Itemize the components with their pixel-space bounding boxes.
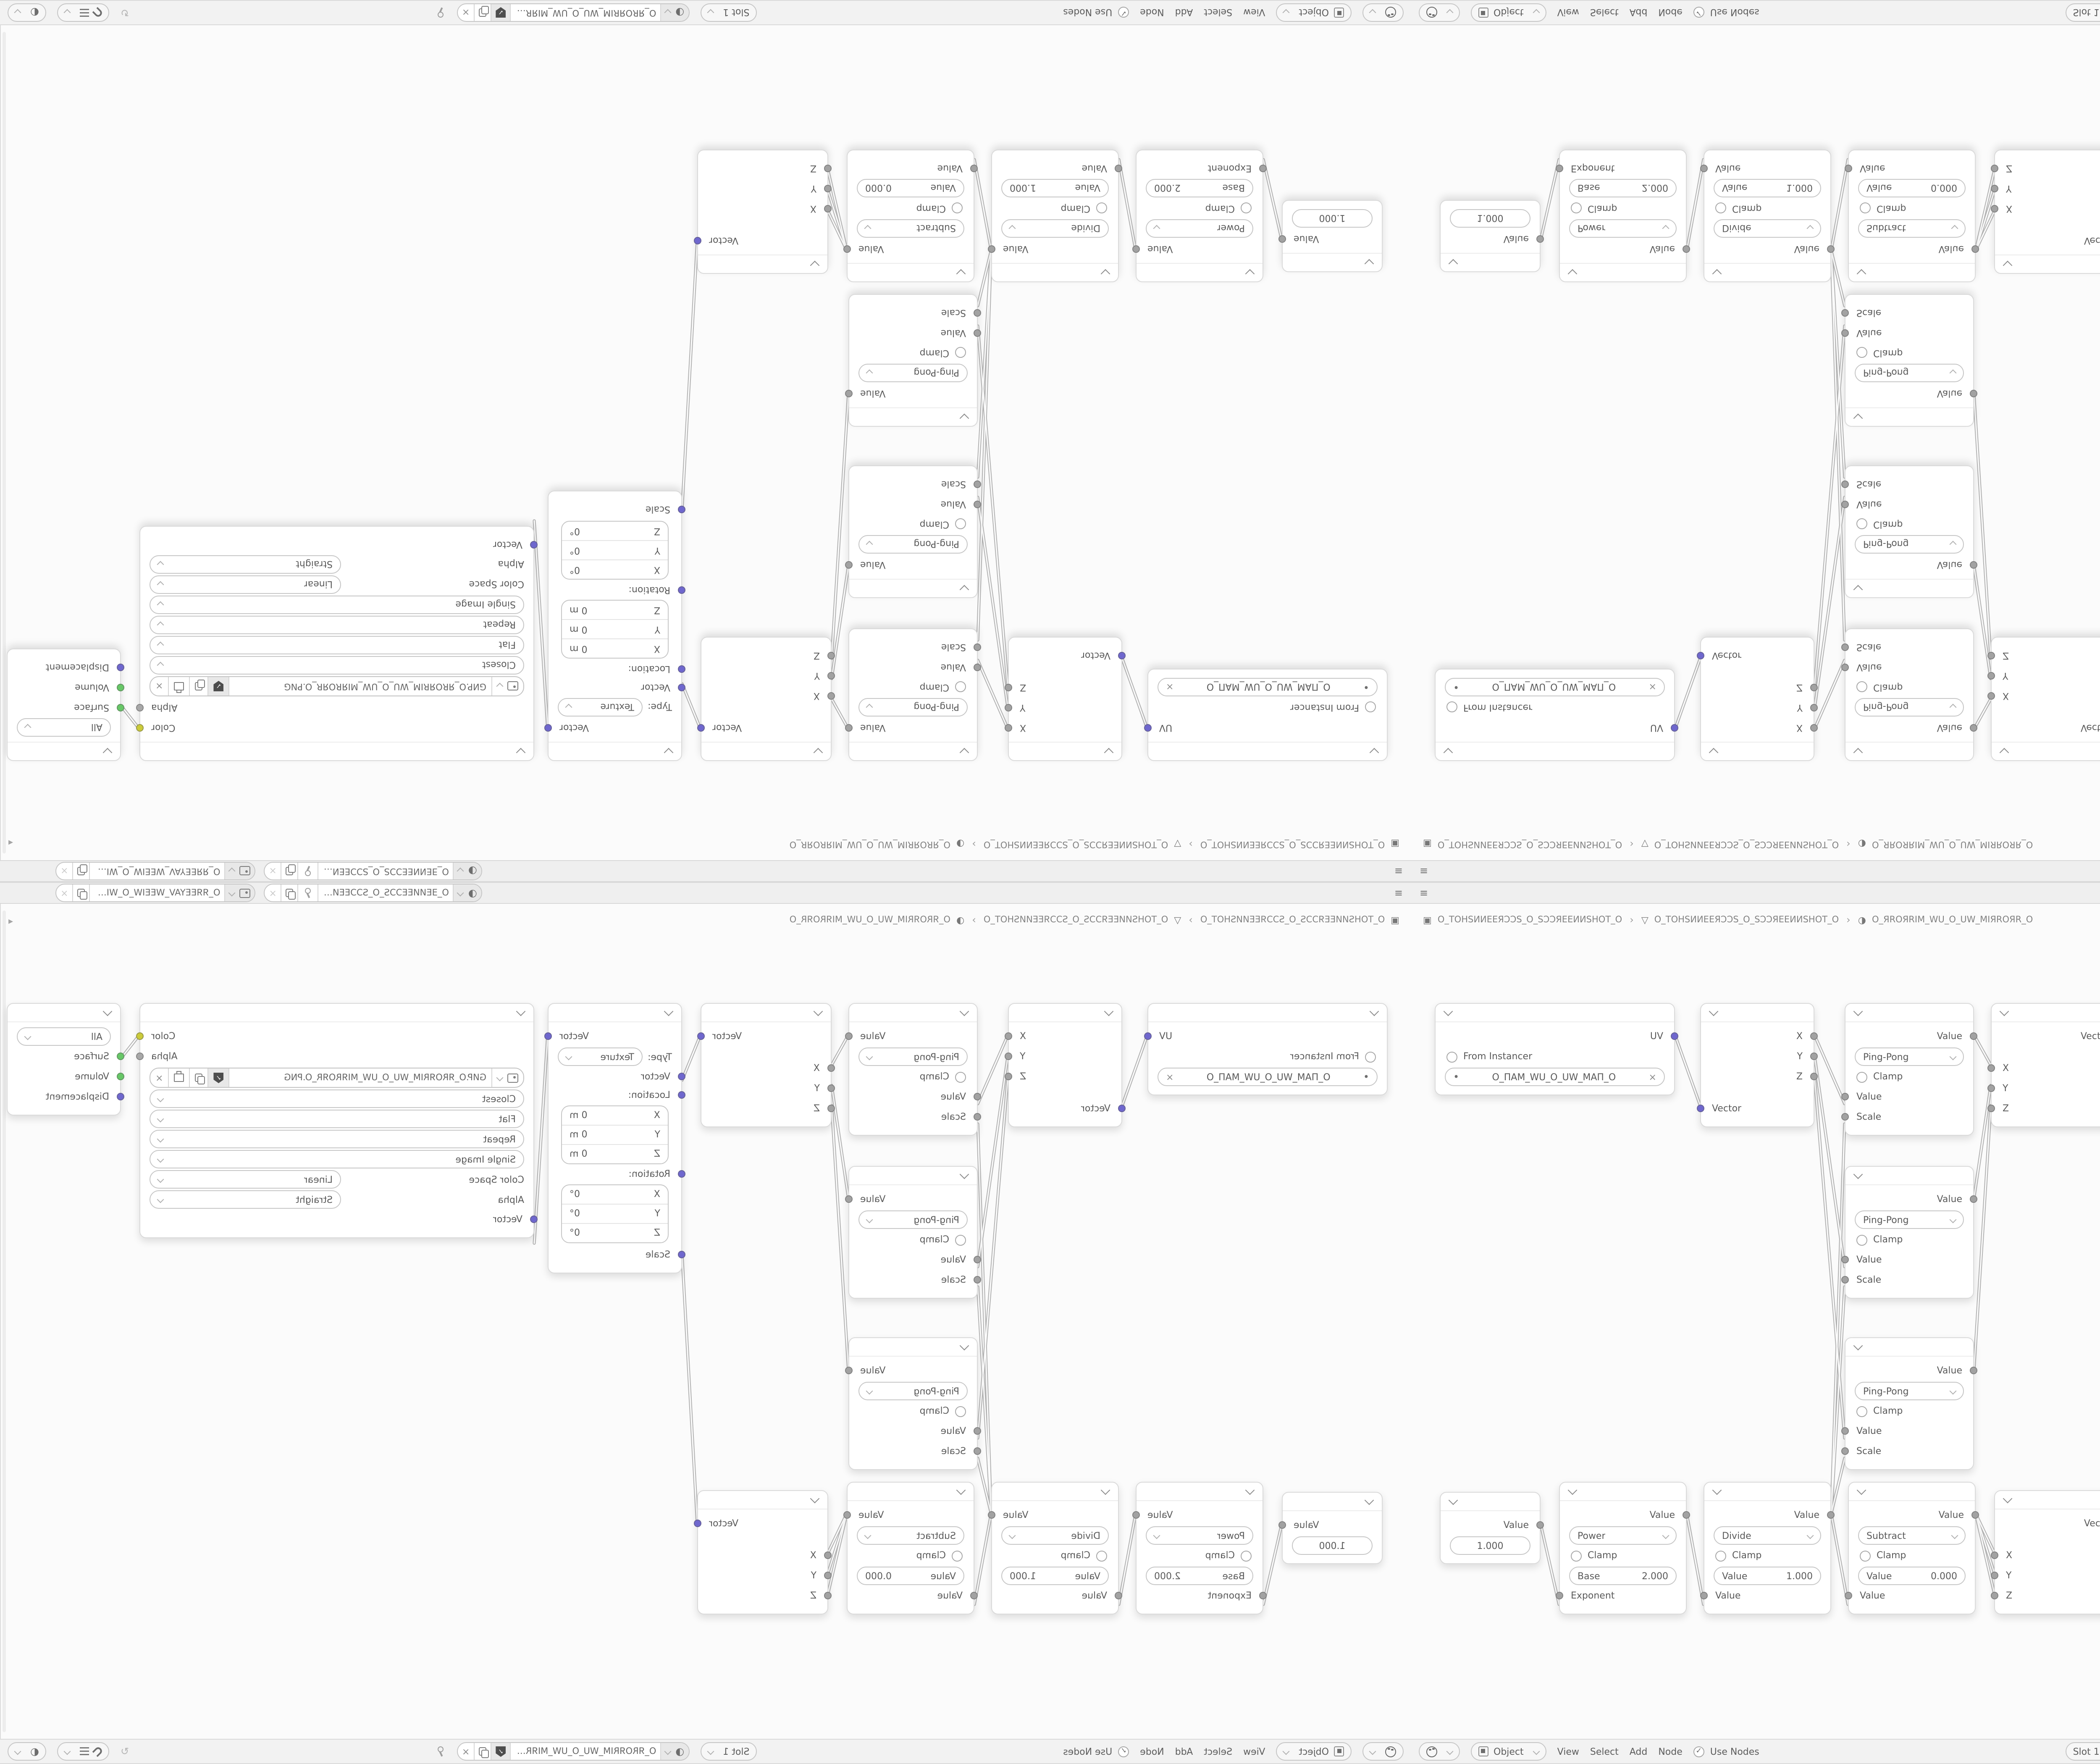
node-collapse-button[interactable] [1283, 1493, 1382, 1511]
socket-scale-input[interactable] [1841, 480, 1849, 488]
menu-select[interactable]: Select [1204, 1746, 1232, 1757]
node-collapse-button[interactable] [8, 1004, 120, 1022]
socket-value-output[interactable] [1971, 1511, 1979, 1519]
editor-type-selector[interactable] [1419, 1742, 1460, 1761]
node-collapse-button[interactable] [849, 742, 977, 760]
socket-y-input[interactable] [1987, 672, 1995, 680]
socket-value-output[interactable] [1971, 245, 1979, 253]
node-collapse-button[interactable] [1283, 253, 1382, 271]
node-math-ping-pong-1[interactable]: Value Ping-Pong Clamp Value Scale [848, 628, 978, 761]
socket-value-output[interactable] [1827, 245, 1835, 253]
snapping-controls[interactable] [58, 1742, 110, 1761]
socket-z-input[interactable] [827, 652, 835, 659]
uv-map-field[interactable]: • O_ПAM_WU_O_UW_MAП_O × [1158, 1068, 1378, 1086]
socket-z-input[interactable] [824, 165, 832, 172]
socket-value-output[interactable] [845, 1367, 853, 1374]
socket-uv-output[interactable] [1144, 1032, 1152, 1040]
socket-x-input[interactable] [1991, 205, 1998, 213]
from-instancer-checkbox[interactable]: From Instancer [1148, 1047, 1387, 1067]
socket-value-input[interactable] [1841, 1427, 1849, 1435]
node-collapse-button[interactable] [8, 742, 120, 760]
socket-z-output[interactable] [1810, 1073, 1818, 1080]
socket-value-input[interactable] [1700, 1592, 1708, 1599]
image-name-field[interactable]: GИP.O_ЯROЯRIM_WU_O_UW_MIЯROЯR_O.PNG [228, 677, 491, 696]
socket-z-output[interactable] [1005, 1073, 1012, 1080]
scrollbar[interactable] [3, 32, 6, 853]
view-layer-browse-dropdown[interactable] [224, 885, 255, 901]
image-browse-dropdown[interactable] [491, 677, 523, 696]
socket-scale-input[interactable] [974, 480, 981, 488]
menu-select[interactable]: Select [1590, 7, 1619, 18]
socket-displacement-input[interactable] [117, 664, 124, 671]
pin-icon[interactable] [435, 7, 446, 18]
clamp-checkbox[interactable]: Clamp [1845, 1401, 1973, 1421]
socket-x-input[interactable] [827, 692, 835, 700]
socket-vector-output[interactable] [697, 1032, 705, 1040]
node-combine-xyz-top[interactable]: Vector X Y Z [701, 637, 832, 761]
sidebar-toggle-icon[interactable]: ◂ [8, 837, 13, 848]
node-math-ping-pong-2[interactable]: Value Ping-Pong Clamp Value Scale [848, 465, 978, 598]
unlink-image-button[interactable]: × [150, 677, 168, 696]
rotation-x-field[interactable]: X0° [562, 560, 668, 579]
socket-scale-input[interactable] [974, 643, 981, 651]
node-separate-xyz[interactable]: X Y Z Vector [1700, 637, 1814, 761]
node-collapse-button[interactable] [1009, 742, 1121, 760]
socket-value-input[interactable] [1115, 1592, 1122, 1599]
node-separate-xyz[interactable]: X Y Z Vector [1008, 1003, 1122, 1127]
node-editor-canvas[interactable]: ▣ O_TOHSИИEEЯƆƆS_O_SƆƆЯEEИИSHOT_O › ▽ O_… [0, 904, 1411, 1739]
math-value-field[interactable]: Value1.000 [1001, 1567, 1109, 1585]
node-collapse-button[interactable] [849, 1167, 977, 1185]
socket-rotation-input[interactable] [678, 586, 685, 594]
new-view-layer-button[interactable] [72, 863, 89, 879]
close-icon[interactable]: × [1166, 1071, 1173, 1082]
socket-value-input[interactable] [1841, 1256, 1849, 1263]
material-slot-dropdown[interactable]: Slot 1 [700, 3, 757, 22]
menu-add[interactable]: Add [1175, 7, 1193, 18]
snapping-controls[interactable] [58, 3, 110, 22]
node-combine-xyz-bottom[interactable]: Vector X Y Z [1994, 150, 2100, 274]
new-material-button[interactable] [474, 4, 491, 21]
socket-vector-output[interactable] [544, 1032, 552, 1040]
rotation-y-field[interactable]: Y0° [562, 541, 668, 560]
node-math-power[interactable]: Value Power Clamp Base2.000 Exponent [1559, 150, 1687, 282]
node-collapse-button[interactable] [1441, 1493, 1540, 1511]
socket-value-input[interactable] [1841, 501, 1849, 508]
node-value[interactable]: Value 1.000 [1440, 1492, 1541, 1564]
shader-type-dropdown[interactable]: Object [1471, 1742, 1546, 1761]
socket-y-output[interactable] [1005, 1053, 1012, 1060]
node-collapse-button[interactable] [549, 742, 681, 760]
clamp-checkbox[interactable]: Clamp [848, 198, 974, 218]
editor-type-selector[interactable] [1362, 3, 1404, 22]
node-math-divide[interactable]: Value Divide Clamp Value1.000 Value [1704, 150, 1831, 282]
node-math-subtract[interactable]: Value Subtract Clamp Value0.000 Value [847, 1482, 974, 1614]
socket-z-input[interactable] [1991, 165, 1998, 172]
clamp-checkbox[interactable]: Clamp [1849, 198, 1975, 218]
output-target-dropdown[interactable]: All [17, 718, 111, 737]
clamp-checkbox[interactable]: Clamp [849, 677, 977, 697]
socket-vector-input[interactable] [1697, 652, 1704, 659]
overlays-dropdown[interactable]: ◐ [8, 1742, 47, 1761]
menu-node[interactable]: Node [1140, 1746, 1164, 1757]
refresh-icon[interactable]: ↻ [121, 1746, 129, 1756]
node-math-ping-pong-3[interactable]: Value Ping-Pong Clamp Value Scale [848, 294, 978, 427]
socket-scale-input[interactable] [1841, 309, 1849, 317]
socket-value-input[interactable] [1259, 1592, 1267, 1599]
socket-x-output[interactable] [1810, 1032, 1818, 1040]
socket-z-input[interactable] [1991, 1592, 1998, 1599]
socket-vector-input[interactable] [678, 1073, 685, 1080]
clamp-checkbox[interactable]: Clamp [1137, 198, 1263, 218]
socket-y-input[interactable] [827, 672, 835, 680]
menu-select[interactable]: Select [1590, 1746, 1619, 1757]
node-collapse-button[interactable] [849, 579, 977, 597]
location-y-field[interactable]: Y0 m [562, 1125, 668, 1144]
from-instancer-checkbox[interactable]: From Instancer [1436, 697, 1674, 717]
math-value-field[interactable]: Value0.000 [857, 179, 964, 197]
math-operation-dropdown[interactable]: Ping-Pong [858, 1210, 968, 1229]
math-operation-dropdown[interactable]: Subtract [1858, 219, 1966, 238]
socket-z-input[interactable] [824, 1592, 832, 1599]
socket-y-input[interactable] [827, 1084, 835, 1092]
socket-value-input[interactable] [1845, 165, 1852, 172]
socket-y-input[interactable] [1991, 1572, 1998, 1579]
node-collapse-button[interactable] [1137, 263, 1263, 281]
location-z-field[interactable]: Z0 m [562, 601, 668, 620]
clamp-checkbox[interactable]: Clamp [992, 1546, 1118, 1566]
socket-x-input[interactable] [827, 1064, 835, 1072]
node-collapse-button[interactable] [1845, 1004, 1973, 1022]
location-x-field[interactable]: X0 m [562, 1106, 668, 1125]
socket-value-input[interactable] [1845, 1592, 1852, 1599]
math-operation-dropdown[interactable]: Divide [1001, 1526, 1109, 1545]
node-math-power[interactable]: Value Power Clamp Base2.000 Exponent [1136, 150, 1263, 282]
node-math-power[interactable]: Value Power Clamp Base2.000 Exponent [1559, 1482, 1687, 1614]
node-uv-map[interactable]: UV From Instancer • O_ПAM_WU_O_UW_MAП_O … [1435, 669, 1675, 761]
menu-node[interactable]: Node [1658, 1746, 1682, 1757]
socket-value-output[interactable] [1536, 1521, 1544, 1529]
socket-value-input[interactable] [1841, 1093, 1849, 1100]
socket-color-output[interactable] [136, 1032, 144, 1040]
math-operation-dropdown[interactable]: Divide [1001, 219, 1109, 238]
math-operation-dropdown[interactable]: Ping-Pong [1855, 535, 1964, 554]
socket-x-output[interactable] [1005, 724, 1012, 732]
node-collapse-button[interactable] [701, 1004, 831, 1022]
unlink-scene-button[interactable]: × [265, 863, 281, 879]
socket-volume-input[interactable] [117, 684, 124, 691]
value-field[interactable]: 1.000 [1450, 1536, 1530, 1555]
node-collapse-button[interactable] [1845, 407, 1973, 426]
socket-value-output[interactable] [988, 1511, 995, 1519]
socket-uv-output[interactable] [1144, 724, 1152, 732]
node-collapse-button[interactable] [992, 1483, 1118, 1501]
socket-value-input[interactable] [1259, 165, 1267, 172]
node-math-ping-pong-3[interactable]: Value Ping-Pong Clamp Value Scale [1845, 294, 1974, 427]
socket-y-output[interactable] [1005, 704, 1012, 711]
menu-view[interactable]: View [1557, 1746, 1579, 1757]
socket-value-output[interactable] [1970, 724, 1977, 732]
extension-dropdown[interactable]: Repeat [150, 1130, 524, 1148]
node-combine-xyz-top[interactable]: Vector X Y Z [1991, 1003, 2100, 1127]
node-collapse-button[interactable] [1441, 253, 1540, 271]
projection-dropdown[interactable]: Flat [150, 636, 524, 654]
rotation-x-field[interactable]: X0° [562, 1185, 668, 1204]
interpolation-dropdown[interactable]: Closest [150, 656, 524, 675]
menu-add[interactable]: Add [1630, 7, 1648, 18]
socket-vector-input[interactable] [1118, 652, 1126, 659]
socket-x-input[interactable] [824, 205, 832, 213]
socket-x-output[interactable] [1005, 1032, 1012, 1040]
pin-icon[interactable] [435, 1746, 446, 1757]
socket-x-output[interactable] [1810, 724, 1818, 732]
alpha-mode-dropdown[interactable]: Straight [150, 1190, 341, 1209]
math-operation-dropdown[interactable]: Power [1146, 219, 1253, 238]
editor-type-selector[interactable] [1419, 3, 1460, 22]
socket-x-input[interactable] [1987, 692, 1995, 700]
math-operation-dropdown[interactable]: Power [1569, 219, 1677, 238]
node-collapse-button[interactable] [849, 1338, 977, 1357]
node-math-divide[interactable]: Value Divide Clamp Value1.000 Value [991, 1482, 1119, 1614]
socket-vector-output[interactable] [694, 1520, 701, 1527]
hamburger-menu-icon[interactable]: ≡ [1420, 888, 1428, 898]
socket-z-output[interactable] [1810, 684, 1818, 691]
socket-y-input[interactable] [824, 1572, 832, 1579]
socket-value-output[interactable] [1970, 390, 1977, 397]
node-material-output[interactable]: All Surface Volume Displacement [7, 648, 121, 761]
socket-scale-input[interactable] [974, 309, 981, 317]
from-instancer-checkbox[interactable]: From Instancer [1148, 697, 1387, 717]
clamp-checkbox[interactable]: Clamp [849, 514, 977, 534]
socket-vector-output[interactable] [544, 724, 552, 732]
math-value-field[interactable]: Base2.000 [1569, 179, 1677, 197]
socket-value-input[interactable] [974, 329, 981, 337]
material-preview-dropdown[interactable]: ◑ [660, 4, 688, 21]
location-z-field[interactable]: Z0 m [562, 1144, 668, 1163]
overlays-dropdown[interactable]: ◐ [8, 3, 47, 22]
node-collapse-button[interactable] [848, 263, 974, 281]
node-math-divide[interactable]: Value Divide Clamp Value1.000 Value [991, 150, 1119, 282]
scene-name-field[interactable]: O_ƎEИИEEƆƆS_O_SƆƆEEИИEƎ_O [318, 885, 453, 901]
view-layer-name-field[interactable]: O_ЯЯEEYAV_WEEIW_O_WIEEW_VAYEEЯЯ_O [89, 885, 224, 901]
socket-value-input[interactable] [970, 165, 978, 172]
socket-value-input[interactable] [1115, 165, 1122, 172]
socket-y-input[interactable] [824, 185, 832, 192]
node-math-ping-pong-2[interactable]: Value Ping-Pong Clamp Value Scale [1845, 465, 1974, 598]
new-material-button[interactable] [474, 1743, 491, 1760]
breadcrumb-object[interactable]: O_TOHSИИEEЯƆƆS_O_SƆƆЯEEИИSHOT_O [1654, 915, 1839, 925]
node-math-ping-pong-1[interactable]: Value Ping-Pong Clamp Value Scale [1845, 1003, 1974, 1136]
socket-scale-input[interactable] [678, 506, 685, 513]
clamp-checkbox[interactable]: Clamp [1704, 1546, 1830, 1566]
projection-dropdown[interactable]: Flat [150, 1110, 524, 1128]
breadcrumb-scene[interactable]: O_TOHSИИEEЯƆƆS_O_SƆƆЯEEИИSHOT_O [1200, 915, 1385, 925]
socket-value-output[interactable] [843, 245, 851, 253]
menu-add[interactable]: Add [1175, 1746, 1193, 1757]
value-field[interactable]: 1.000 [1292, 209, 1373, 228]
node-collapse-button[interactable] [1992, 742, 2100, 760]
socket-scale-input[interactable] [1841, 1276, 1849, 1284]
breadcrumb-scene[interactable]: O_TOHSИИEEЯƆƆS_O_SƆƆЯEEИИSHOT_O [1200, 839, 1385, 849]
node-uv-map[interactable]: UV From Instancer • O_ПAM_WU_O_UW_MAП_O … [1147, 669, 1388, 761]
uv-map-field[interactable]: • O_ПAM_WU_O_UW_MAП_O × [1158, 678, 1378, 696]
socket-alpha-output[interactable] [136, 1053, 144, 1060]
math-operation-dropdown[interactable]: Subtract [1858, 1526, 1966, 1545]
socket-scale-input[interactable] [974, 1276, 981, 1284]
socket-z-input[interactable] [1987, 652, 1995, 659]
fake-user-button[interactable]: ✓ [207, 677, 228, 696]
uv-map-field[interactable]: • O_ПAM_WU_O_UW_MAП_O × [1445, 678, 1665, 696]
node-collapse-button[interactable] [1009, 1004, 1121, 1022]
breadcrumb-material[interactable]: O_ЯROЯRIM_WU_O_UW_MIЯROЯR_O [1872, 915, 2033, 925]
socket-value-output[interactable] [1278, 1521, 1286, 1529]
node-separate-xyz[interactable]: X Y Z Vector [1008, 637, 1122, 761]
socket-z-output[interactable] [1005, 684, 1012, 691]
pack-image-button[interactable] [168, 677, 189, 696]
socket-x-input[interactable] [1991, 1551, 1998, 1559]
node-collapse-button[interactable] [1849, 1483, 1975, 1501]
color-space-dropdown[interactable]: Linear [150, 575, 341, 594]
socket-value-output[interactable] [988, 245, 995, 253]
node-collapse-button[interactable] [1849, 263, 1975, 281]
socket-value-output[interactable] [1683, 245, 1690, 253]
math-operation-dropdown[interactable]: Divide [1714, 219, 1821, 238]
node-image-texture[interactable]: Color Alpha GИP.O_ЯROЯRIM_WU_O_UW_MIЯROЯ… [139, 526, 534, 761]
socket-value-output[interactable] [845, 1195, 853, 1203]
socket-value-output[interactable] [845, 561, 853, 569]
close-icon[interactable]: × [1649, 1071, 1656, 1082]
socket-value-output[interactable] [1132, 1511, 1140, 1519]
node-mapping[interactable]: Vector Type: Texture Vector Location: X0… [548, 1003, 682, 1273]
node-collapse-button[interactable] [549, 1004, 681, 1022]
pin-scene-button[interactable] [298, 885, 318, 901]
material-slot-dropdown[interactable]: Slot 1 [2066, 3, 2100, 22]
node-image-texture[interactable]: Color Alpha GИP.O_ЯROЯRIM_WU_O_UW_MIЯROЯ… [139, 1003, 534, 1238]
node-editor-canvas[interactable]: ▣ O_TOHSИИEEЯƆƆS_O_SƆƆЯEEИИSHOT_O › ▽ O_… [1411, 904, 2100, 1739]
math-operation-dropdown[interactable]: Ping-Pong [1855, 364, 1964, 382]
math-operation-dropdown[interactable]: Ping-Pong [858, 1382, 968, 1400]
node-value[interactable]: Value 1.000 [1282, 200, 1383, 272]
new-view-layer-button[interactable] [72, 885, 89, 901]
socket-y-output[interactable] [1810, 704, 1818, 711]
remove-view-layer-button[interactable]: × [56, 885, 72, 901]
node-math-ping-pong-3[interactable]: Value Ping-Pong Clamp Value Scale [1845, 1337, 1974, 1470]
node-collapse-button[interactable] [1701, 1004, 1814, 1022]
clamp-checkbox[interactable]: Clamp [1845, 343, 1973, 363]
clamp-checkbox[interactable]: Clamp [849, 1230, 977, 1250]
from-instancer-checkbox[interactable]: From Instancer [1436, 1047, 1674, 1067]
socket-vector-input[interactable] [530, 541, 538, 549]
node-combine-xyz-top[interactable]: Vector X Y Z [1991, 637, 2100, 761]
unlink-scene-button[interactable]: × [265, 885, 281, 901]
node-material-output[interactable]: All Surface Volume Displacement [7, 1003, 121, 1116]
breadcrumb-object[interactable]: O_TOHSИИEEЯƆƆS_O_SƆƆЯEEИИSHOT_O [984, 915, 1168, 925]
math-value-field[interactable]: Value0.000 [1858, 179, 1966, 197]
breadcrumb-object[interactable]: O_TOHSИИEEЯƆƆS_O_SƆƆЯEEИИSHOT_O [984, 839, 1168, 849]
scene-browse-dropdown[interactable]: ◑ [453, 863, 481, 879]
source-dropdown[interactable]: Single Image [150, 596, 524, 614]
rotation-y-field[interactable]: Y0° [562, 1204, 668, 1223]
alpha-mode-dropdown[interactable]: Straight [150, 555, 341, 574]
socket-value-output[interactable] [845, 390, 853, 397]
node-uv-map[interactable]: UV From Instancer • O_ПAM_WU_O_UW_MAП_O … [1435, 1003, 1675, 1095]
node-math-ping-pong-1[interactable]: Value Ping-Pong Clamp Value Scale [848, 1003, 978, 1136]
image-browse-dropdown[interactable] [491, 1068, 523, 1087]
node-value[interactable]: Value 1.000 [1440, 200, 1541, 272]
socket-value-input[interactable] [974, 1427, 981, 1435]
node-collapse-button[interactable] [698, 255, 827, 273]
socket-location-input[interactable] [678, 665, 685, 673]
fake-user-button[interactable]: ✓ [491, 1743, 510, 1760]
math-operation-dropdown[interactable]: Power [1569, 1526, 1677, 1545]
math-value-field[interactable]: Value1.000 [1714, 179, 1821, 197]
clamp-checkbox[interactable]: Clamp [1560, 1546, 1686, 1566]
socket-vector-input[interactable] [530, 1215, 538, 1223]
socket-volume-input[interactable] [117, 1073, 124, 1080]
breadcrumb-scene[interactable]: O_TOHSИИEEЯƆƆS_O_SƆƆЯEEИИSHOT_O [1438, 915, 1622, 925]
node-collapse-button[interactable] [992, 263, 1118, 281]
close-icon[interactable]: × [1649, 682, 1656, 693]
node-separate-xyz[interactable]: X Y Z Vector [1700, 1003, 1814, 1127]
socket-value-output[interactable] [1278, 235, 1286, 243]
node-collapse-button[interactable] [1704, 263, 1830, 281]
value-field[interactable]: 1.000 [1292, 1536, 1373, 1555]
socket-value-input[interactable] [1556, 165, 1563, 172]
math-operation-dropdown[interactable]: Ping-Pong [858, 698, 968, 717]
math-operation-dropdown[interactable]: Ping-Pong [858, 364, 968, 382]
view-layer-name-field[interactable]: O_ЯЯEEYAV_WEEIW_O_WIEEW_VAYEEЯЯ_O [89, 863, 224, 879]
socket-value-output[interactable] [1827, 1511, 1835, 1519]
node-math-subtract[interactable]: Value Subtract Clamp Value0.000 Value [1848, 1482, 1976, 1614]
socket-scale-input[interactable] [1841, 1447, 1849, 1455]
node-collapse-button[interactable] [1995, 255, 2100, 273]
node-collapse-button[interactable] [140, 1004, 533, 1022]
node-collapse-button[interactable] [1704, 1483, 1830, 1501]
node-collapse-button[interactable] [1560, 263, 1686, 281]
node-collapse-button[interactable] [1845, 579, 1973, 597]
menu-view[interactable]: View [1243, 1746, 1265, 1757]
socket-value-output[interactable] [1132, 245, 1140, 253]
node-collapse-button[interactable] [1436, 1004, 1674, 1022]
material-name-field[interactable]: O_ЯROЯRIM_WU_O_UW_MIЯROЯR_O [510, 4, 660, 21]
breadcrumb-material[interactable]: O_ЯROЯRIM_WU_O_UW_MIЯROЯR_O [1872, 839, 2033, 849]
socket-x-input[interactable] [824, 1551, 832, 1559]
node-combine-xyz-bottom[interactable]: Vector X Y Z [697, 150, 828, 274]
socket-alpha-output[interactable] [136, 704, 144, 711]
node-math-subtract[interactable]: Value Subtract Clamp Value0.000 Value [1848, 150, 1976, 282]
math-value-field[interactable]: Base2.000 [1569, 1567, 1677, 1585]
use-nodes-checkbox[interactable]: ✓ Use Nodes [1693, 1746, 1759, 1757]
socket-value-input[interactable] [1841, 329, 1849, 337]
node-math-ping-pong-3[interactable]: Value Ping-Pong Clamp Value Scale [848, 1337, 978, 1470]
fake-user-button[interactable]: ✓ [207, 1068, 228, 1087]
uv-map-field[interactable]: • O_ПAM_WU_O_UW_MAП_O × [1445, 1068, 1665, 1086]
material-name-field[interactable]: O_ЯROЯRIM_WU_O_UW_MIЯROЯR_O [510, 1743, 660, 1760]
menu-add[interactable]: Add [1630, 1746, 1648, 1757]
math-operation-dropdown[interactable]: Ping-Pong [1855, 1210, 1964, 1229]
color-space-dropdown[interactable]: Linear [150, 1170, 341, 1189]
socket-z-input[interactable] [1987, 1105, 1995, 1112]
scene-name-field[interactable]: O_ƎEИИEEƆƆS_O_SƆƆEEИИEƎ_O [318, 863, 453, 879]
socket-vector-output[interactable] [694, 237, 701, 244]
clamp-checkbox[interactable]: Clamp [849, 1067, 977, 1087]
socket-vector-input[interactable] [1118, 1105, 1126, 1112]
socket-y-input[interactable] [1991, 185, 1998, 192]
math-operation-dropdown[interactable]: Power [1146, 1526, 1253, 1545]
node-math-subtract[interactable]: Value Subtract Clamp Value0.000 Value [847, 150, 974, 282]
sidebar-toggle-icon[interactable]: ◂ [8, 916, 13, 927]
math-operation-dropdown[interactable]: Ping-Pong [1855, 1047, 1964, 1066]
